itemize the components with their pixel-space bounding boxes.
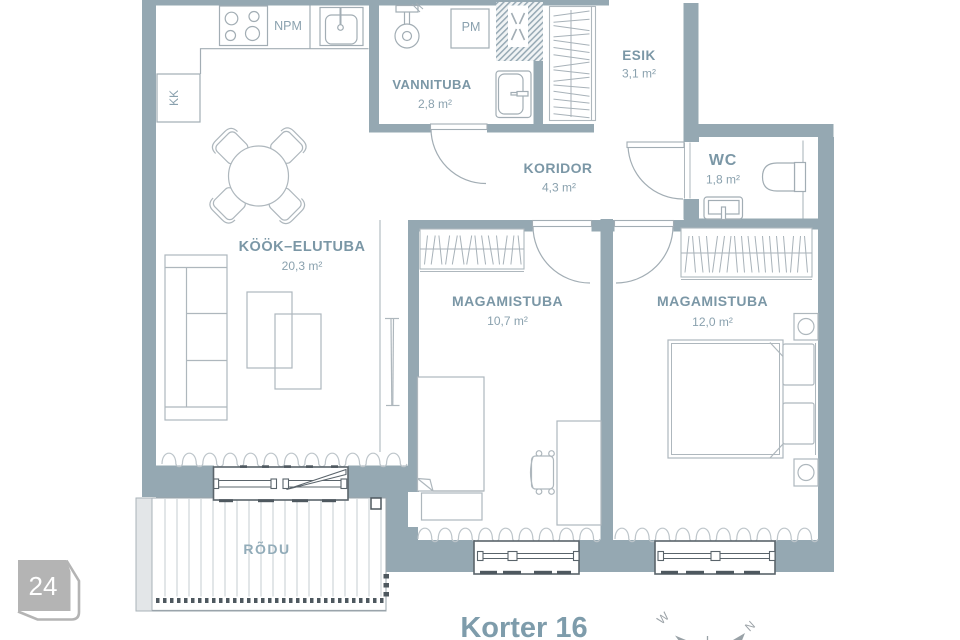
- svg-text:24: 24: [29, 571, 58, 601]
- svg-text:WC: WC: [709, 152, 737, 169]
- svg-text:RÕDU: RÕDU: [243, 540, 290, 557]
- svg-text:3,1 m²: 3,1 m²: [622, 67, 656, 81]
- svg-text:KÖÖK–ELUTUBA: KÖÖK–ELUTUBA: [239, 238, 366, 255]
- svg-text:MAGAMISTUBA: MAGAMISTUBA: [452, 293, 563, 309]
- svg-text:NPM: NPM: [274, 19, 302, 33]
- svg-text:20,3 m²: 20,3 m²: [282, 259, 323, 273]
- svg-text:2,8 m²: 2,8 m²: [418, 97, 452, 111]
- svg-text:1,8 m²: 1,8 m²: [706, 173, 740, 187]
- svg-text:10,7 m²: 10,7 m²: [487, 314, 528, 328]
- svg-text:KORIDOR: KORIDOR: [524, 160, 593, 176]
- svg-text:ESIK: ESIK: [622, 48, 656, 63]
- svg-text:12,0 m²: 12,0 m²: [692, 315, 733, 329]
- svg-text:Korter 16: Korter 16: [460, 612, 587, 640]
- svg-text:KK: KK: [167, 90, 181, 106]
- svg-text:MAGAMISTUBA: MAGAMISTUBA: [657, 293, 768, 309]
- svg-text:4,3 m²: 4,3 m²: [542, 181, 576, 195]
- svg-text:VANNITUBA: VANNITUBA: [392, 77, 471, 92]
- svg-text:PM: PM: [462, 20, 481, 34]
